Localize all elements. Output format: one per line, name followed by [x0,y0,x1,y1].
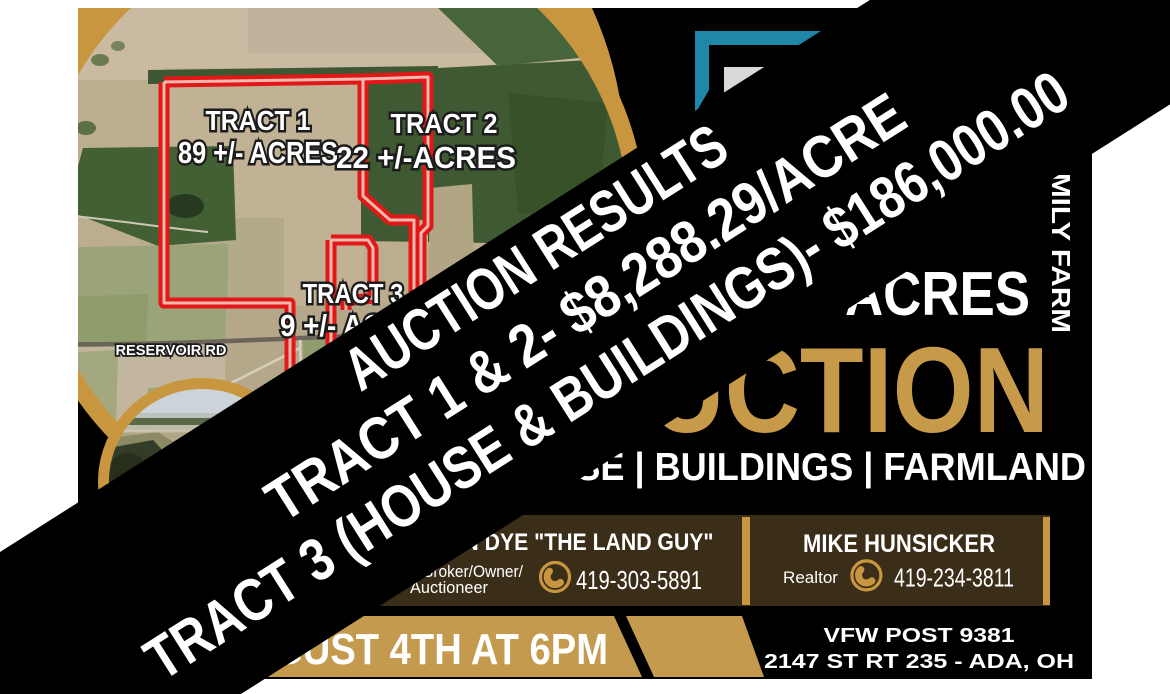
svg-text:22 +/-ACRES: 22 +/-ACRES [336,140,516,175]
svg-text:Auctioneer: Auctioneer [410,578,488,597]
svg-text:419-303-5891: 419-303-5891 [576,565,702,595]
svg-text:TRACT 3: TRACT 3 [303,278,404,309]
svg-text:RESERVOIR RD: RESERVOIR RD [116,342,227,359]
svg-text:TRACT 2: TRACT 2 [391,108,498,139]
svg-text:Realtor: Realtor [783,568,838,587]
svg-text:TRACT 1: TRACT 1 [206,105,311,136]
svg-text:MIKE HUNSICKER: MIKE HUNSICKER [803,530,995,558]
svg-text:89 +/- ACRES: 89 +/- ACRES [178,135,338,170]
svg-text:2147 ST RT 235 - ADA, OH: 2147 ST RT 235 - ADA, OH [764,651,1074,673]
svg-text:419-234-3811: 419-234-3811 [894,563,1014,593]
svg-text:VFW POST 9381: VFW POST 9381 [824,625,1015,647]
